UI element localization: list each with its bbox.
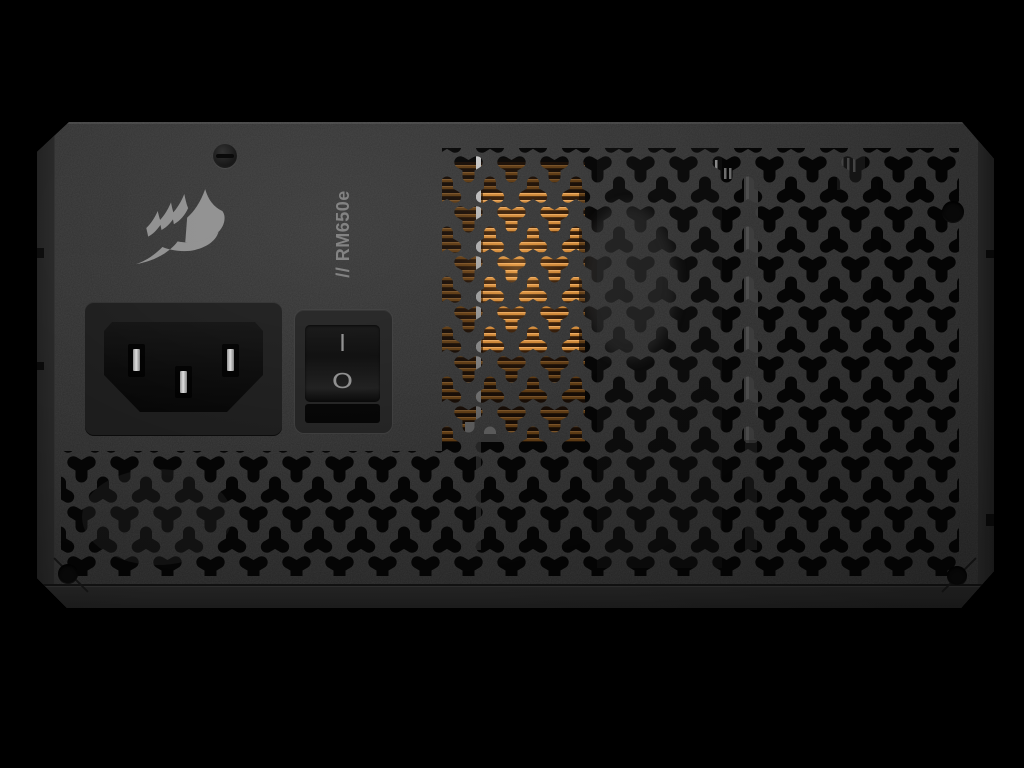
switch-lower-recess xyxy=(305,404,380,423)
right-edge-notch xyxy=(986,514,994,526)
inlet-pin-right xyxy=(222,344,239,377)
ac-power-inlet xyxy=(85,302,282,436)
inlet-recess xyxy=(104,322,263,412)
psu-rear-panel: // RM650e I O xyxy=(37,122,994,608)
right-side-edge xyxy=(978,122,995,608)
corsair-sails-icon xyxy=(133,188,228,270)
power-switch: I O xyxy=(294,309,393,434)
switch-off-symbol: O xyxy=(301,371,385,391)
product-photo-stage: // RM650e I O xyxy=(0,0,1024,768)
switch-on-symbol: I xyxy=(305,333,380,356)
screw-slot xyxy=(216,154,234,158)
bottom-left-screw-hole xyxy=(58,564,78,584)
top-right-vent-hole xyxy=(942,201,964,223)
right-edge-notch xyxy=(986,250,994,258)
inlet-pin-earth xyxy=(175,366,192,398)
bottom-flange xyxy=(37,584,994,611)
model-label: // RM650e xyxy=(332,182,354,286)
inlet-pin-left xyxy=(128,344,145,377)
power-switch-rocker: I O xyxy=(305,325,380,402)
top-screw xyxy=(213,144,237,168)
bottom-right-screw-hole xyxy=(947,566,967,586)
left-edge-notch xyxy=(37,248,44,258)
top-edge-highlight xyxy=(67,122,964,124)
left-edge-notch xyxy=(37,362,44,370)
